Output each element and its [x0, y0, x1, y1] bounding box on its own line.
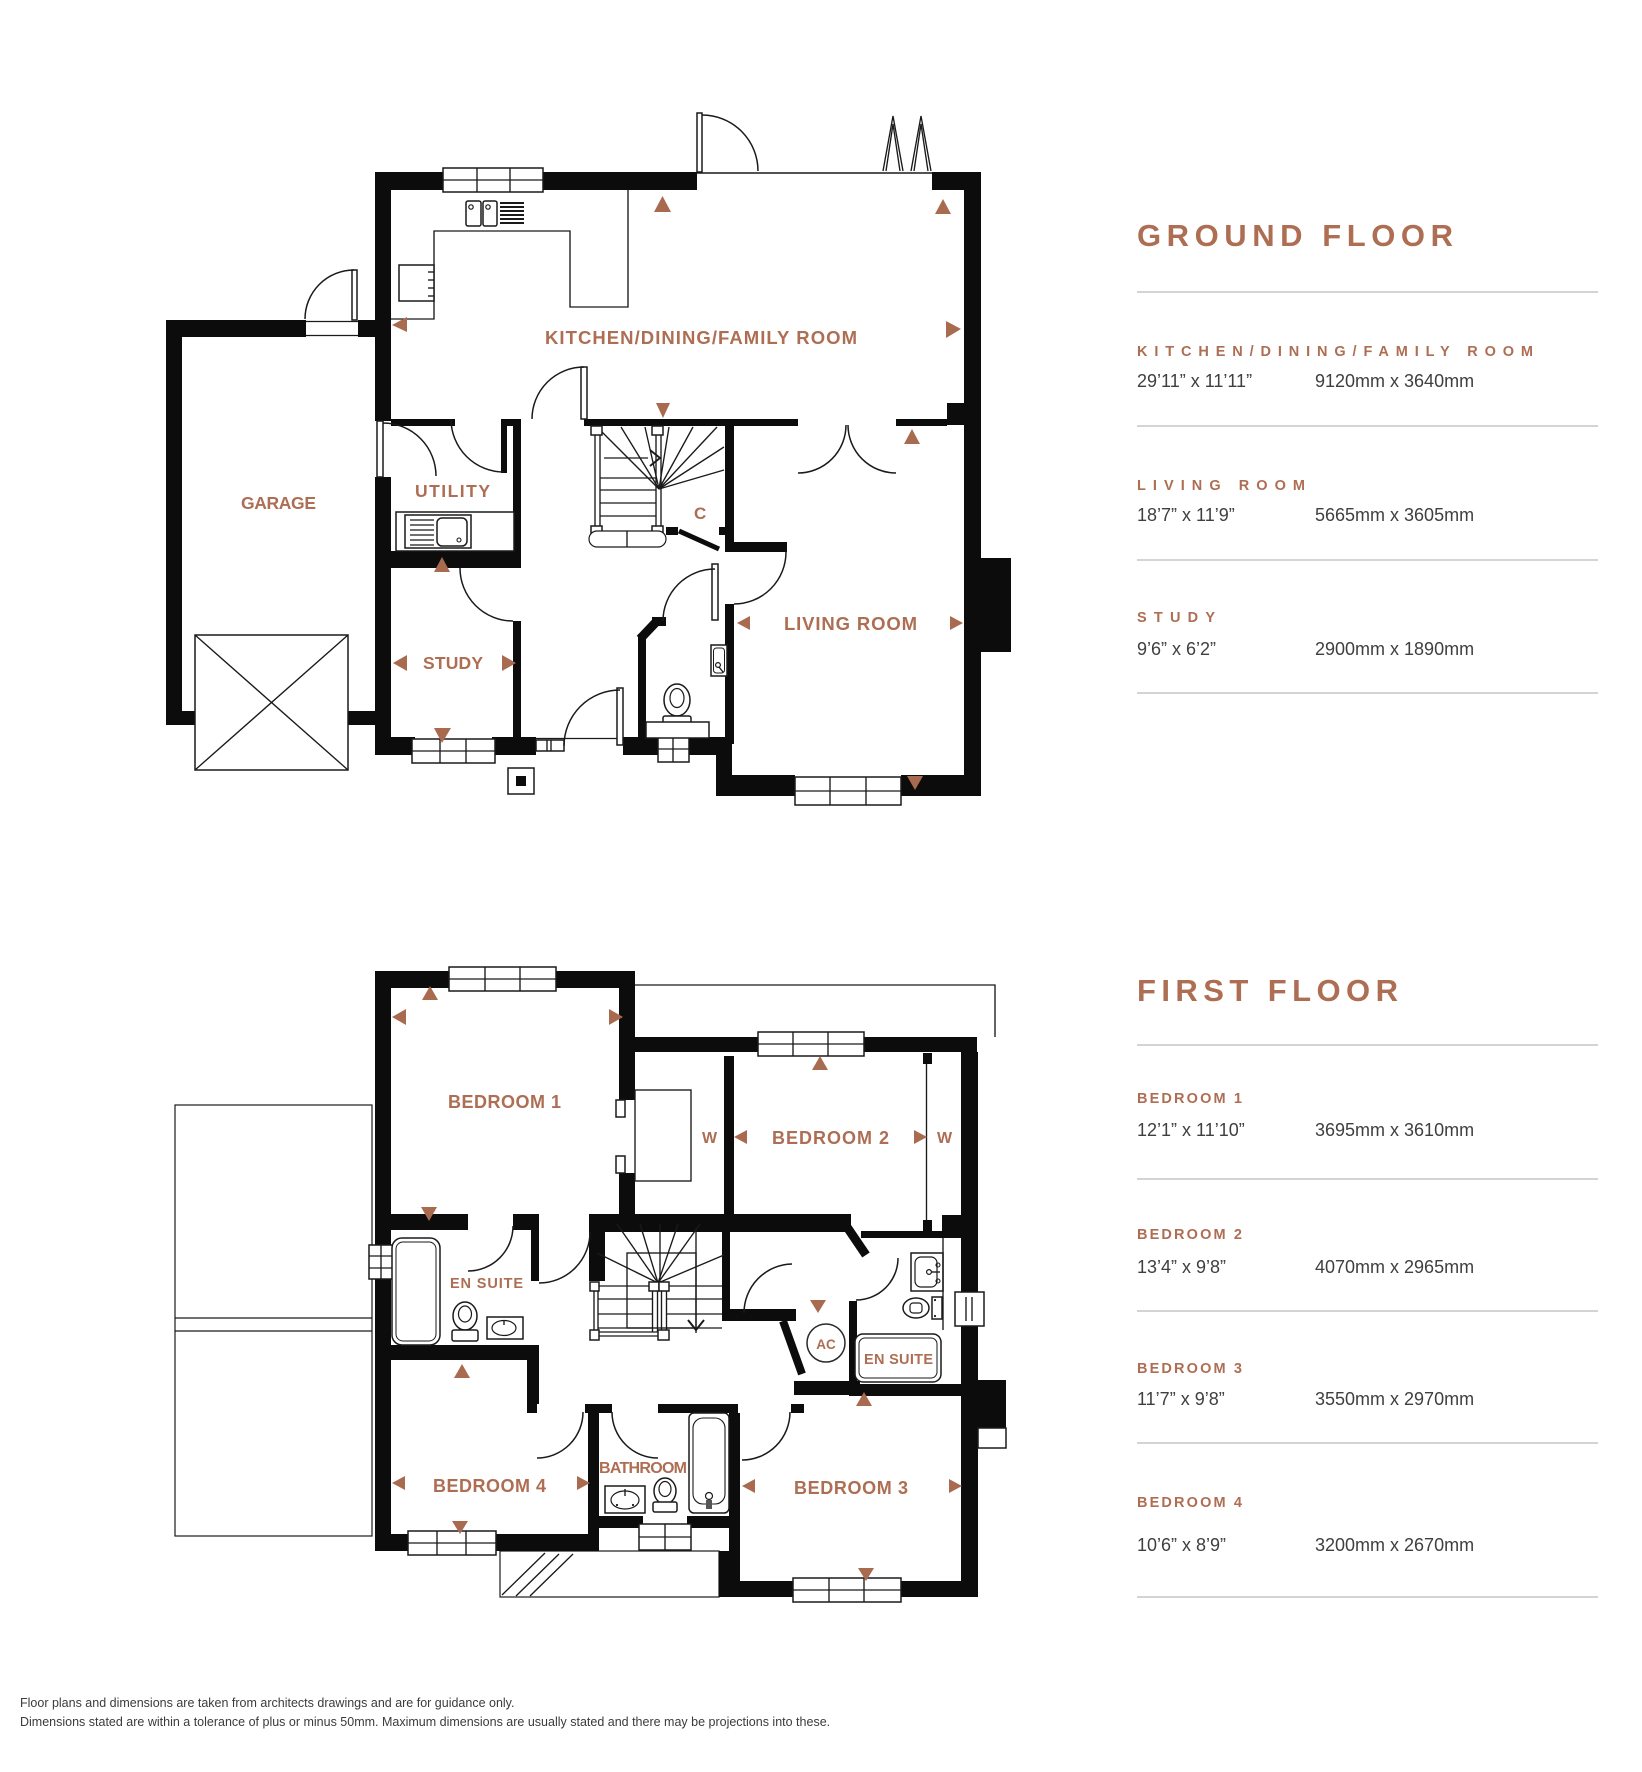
svg-text:Floor plans and dimensions are: Floor plans and dimensions are taken fro… [20, 1696, 514, 1710]
svg-text:GROUND FLOOR: GROUND FLOOR [1137, 218, 1453, 253]
svg-text:LIVING ROOM: LIVING ROOM [784, 613, 917, 634]
svg-text:BEDROOM 2: BEDROOM 2 [772, 1128, 889, 1148]
svg-text:BEDROOM 4: BEDROOM 4 [433, 1476, 546, 1496]
svg-text:KITCHEN/DINING/FAMILY ROOM: KITCHEN/DINING/FAMILY ROOM [545, 327, 857, 348]
svg-text:STUDY: STUDY [423, 653, 483, 673]
svg-text:BEDROOM 2: BEDROOM 2 [1137, 1227, 1242, 1243]
svg-text:EN SUITE: EN SUITE [864, 1352, 933, 1368]
svg-text:BEDROOM 1: BEDROOM 1 [448, 1092, 561, 1112]
svg-text:Dimensions stated are within a: Dimensions stated are within a tolerance… [20, 1715, 830, 1729]
svg-text:3695mm x 3610mm: 3695mm x 3610mm [1315, 1120, 1474, 1140]
svg-text:AC: AC [816, 1337, 836, 1352]
svg-text:UTILITY: UTILITY [415, 481, 490, 501]
svg-text:BEDROOM 1: BEDROOM 1 [1137, 1091, 1242, 1107]
svg-text:11’7” x 9’8”: 11’7” x 9’8” [1137, 1389, 1225, 1409]
svg-text:10’6” x 8’9”: 10’6” x 8’9” [1137, 1535, 1226, 1555]
svg-text:GARAGE: GARAGE [241, 493, 316, 513]
svg-text:W: W [937, 1130, 953, 1147]
svg-text:13’4” x 9’8”: 13’4” x 9’8” [1137, 1257, 1226, 1277]
svg-text:BEDROOM 3: BEDROOM 3 [1137, 1361, 1242, 1377]
svg-text:EN SUITE: EN SUITE [450, 1276, 523, 1292]
svg-text:BEDROOM 4: BEDROOM 4 [1137, 1495, 1242, 1511]
svg-text:BATHROOM: BATHROOM [599, 1460, 687, 1477]
svg-text:3200mm x 2670mm: 3200mm x 2670mm [1315, 1535, 1474, 1555]
svg-text:4070mm x 2965mm: 4070mm x 2965mm [1315, 1257, 1474, 1277]
svg-text:9’6” x 6’2”: 9’6” x 6’2” [1137, 639, 1216, 659]
svg-text:W: W [702, 1130, 718, 1147]
svg-text:C: C [694, 504, 706, 523]
svg-text:KITCHEN/DINING/FAMILY ROOM: KITCHEN/DINING/FAMILY ROOM [1137, 344, 1533, 360]
svg-text:18’7” x 11’9”: 18’7” x 11’9” [1137, 505, 1235, 525]
svg-text:9120mm x 3640mm: 9120mm x 3640mm [1315, 371, 1474, 391]
svg-text:12’1” x 11’10”: 12’1” x 11’10” [1137, 1120, 1245, 1140]
svg-text:FIRST FLOOR: FIRST FLOOR [1137, 973, 1398, 1008]
svg-text:STUDY: STUDY [1137, 610, 1215, 626]
svg-text:29’11” x 11’11”: 29’11” x 11’11” [1137, 371, 1252, 391]
svg-text:BEDROOM 3: BEDROOM 3 [794, 1478, 908, 1498]
svg-text:5665mm x 3605mm: 5665mm x 3605mm [1315, 505, 1474, 525]
svg-text:3550mm x 2970mm: 3550mm x 2970mm [1315, 1389, 1474, 1409]
svg-text:LIVING ROOM: LIVING ROOM [1137, 478, 1305, 494]
svg-text:2900mm x 1890mm: 2900mm x 1890mm [1315, 639, 1474, 659]
